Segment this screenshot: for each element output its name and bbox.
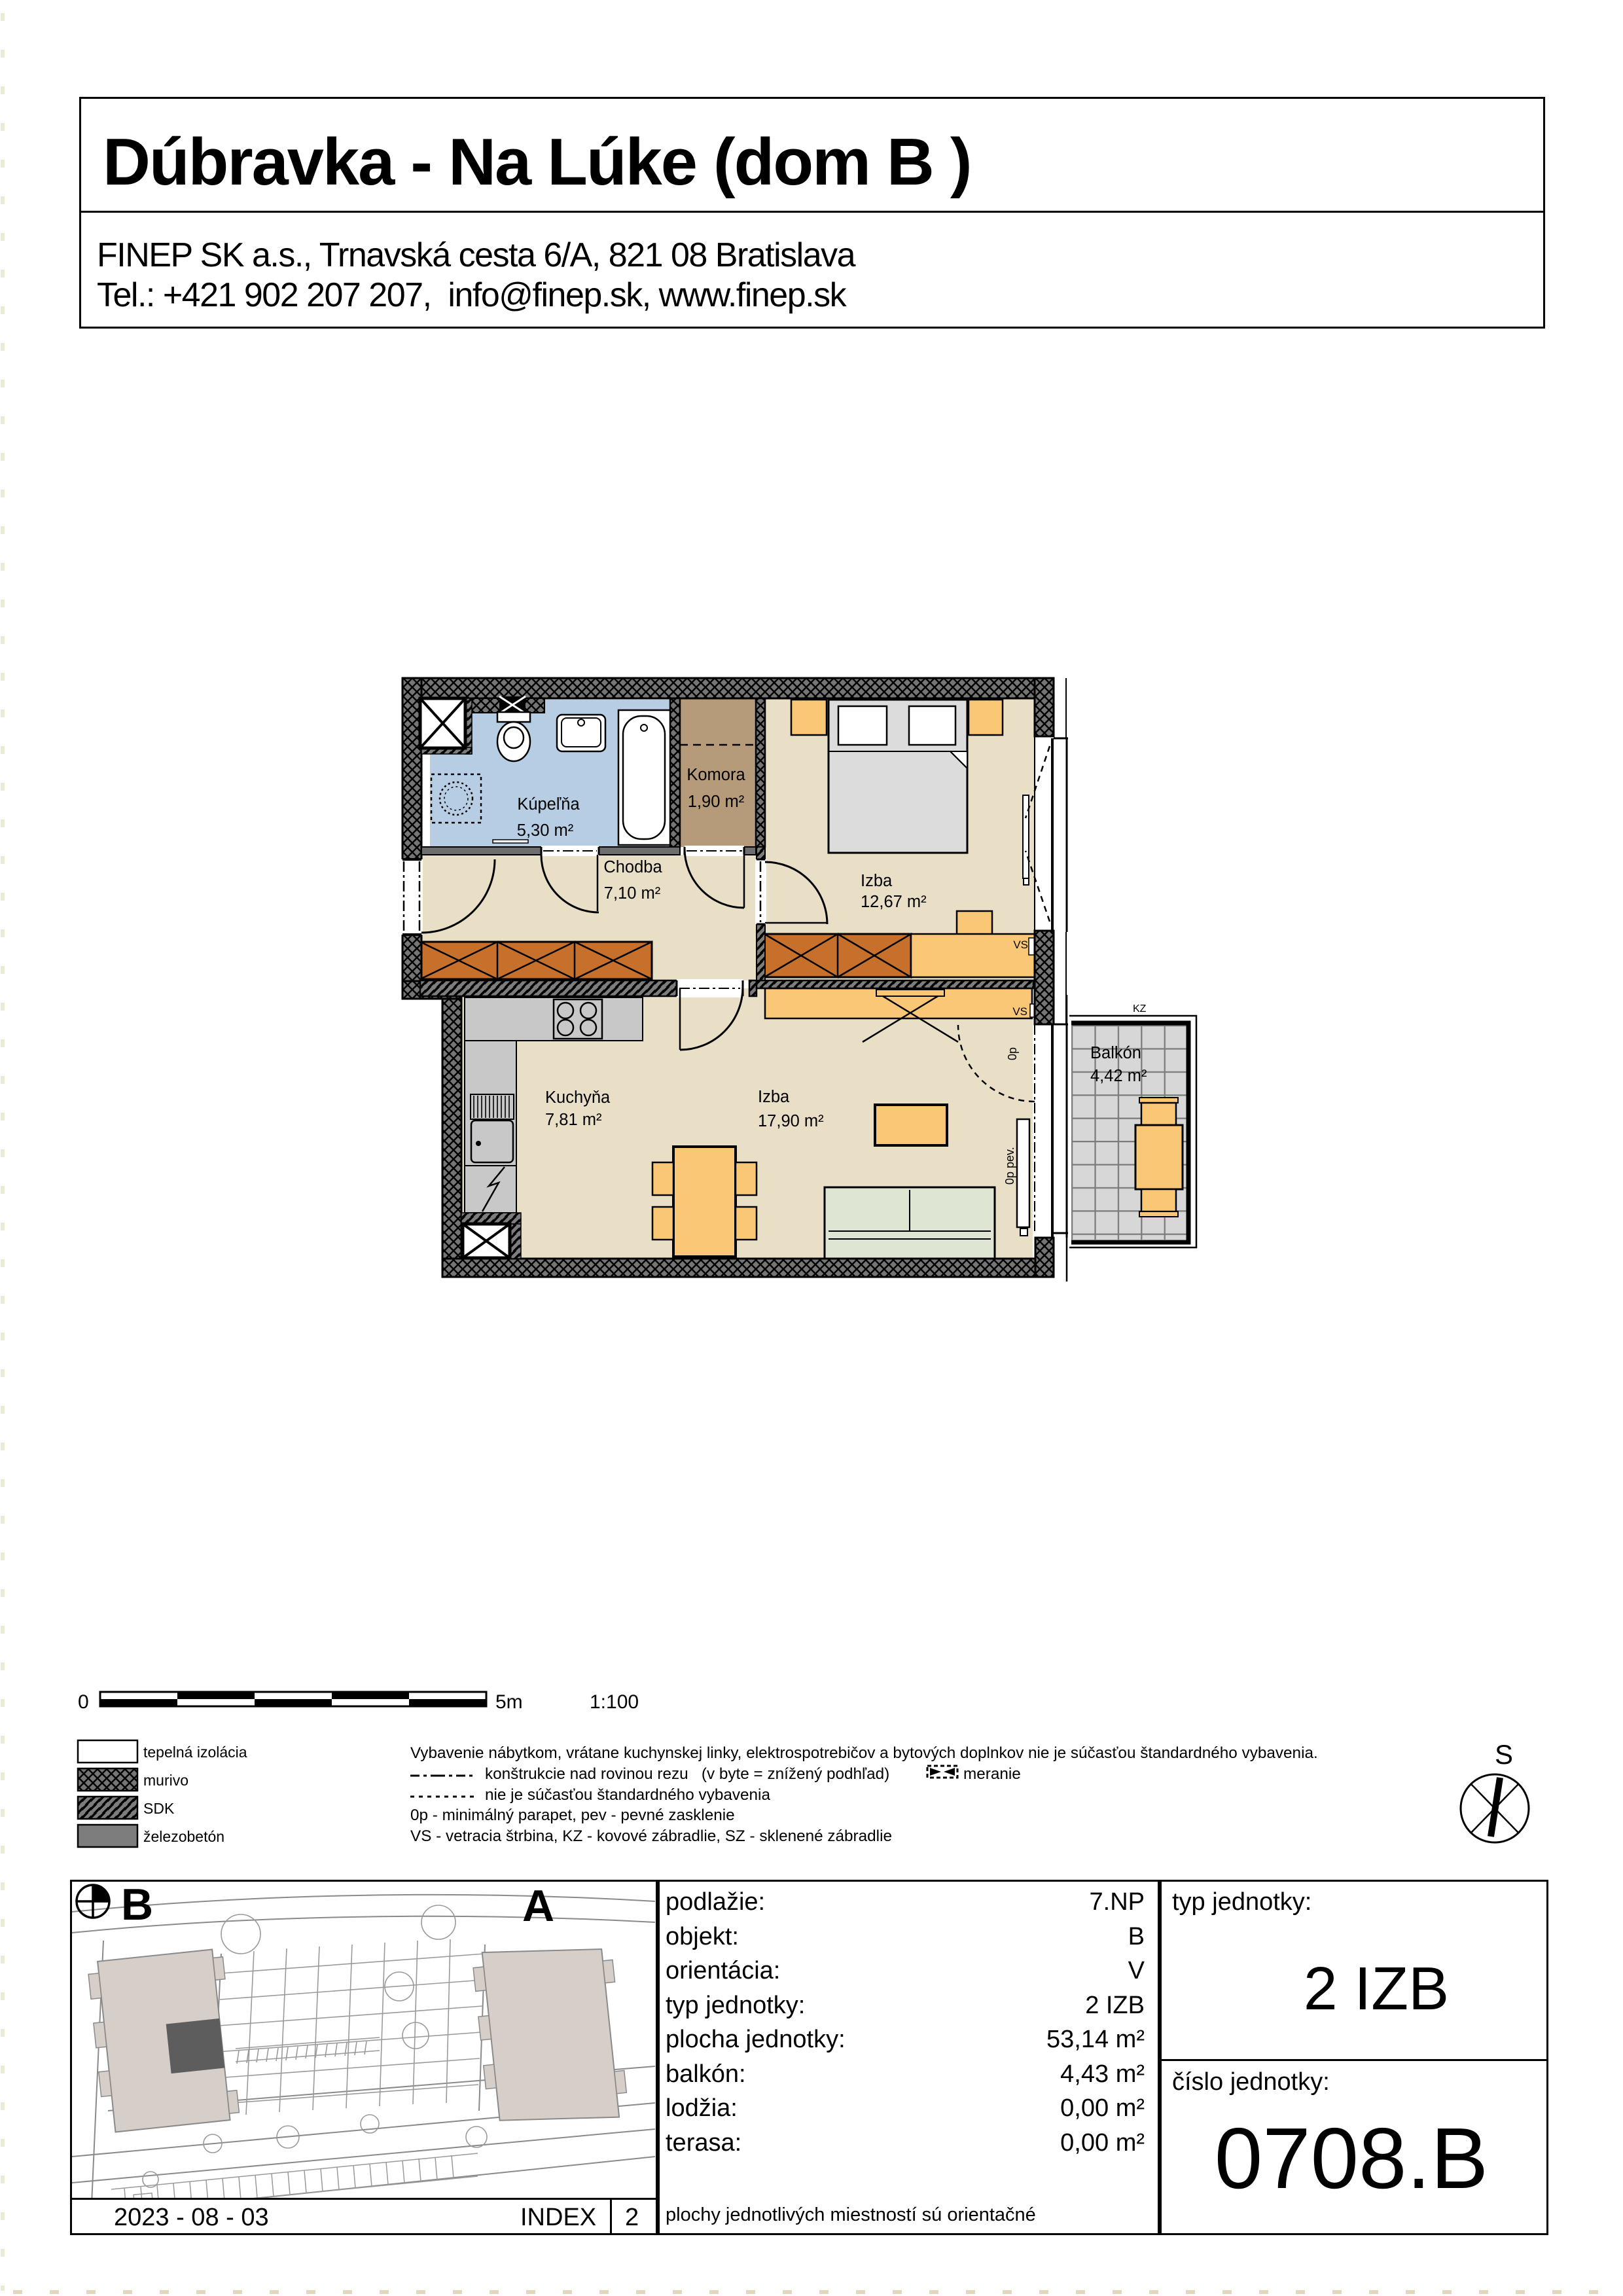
- svg-text:tepelná izolácia: tepelná izolácia: [143, 1744, 247, 1761]
- svg-text:4,42 m²: 4,42 m²: [1090, 1067, 1147, 1085]
- svg-text:Komora: Komora: [687, 766, 745, 784]
- svg-text:KZ: KZ: [1133, 1003, 1147, 1014]
- svg-text:0p: 0p: [1006, 1047, 1019, 1060]
- svg-text:Izba: Izba: [758, 1088, 790, 1106]
- svg-text:Kuchyňa: Kuchyňa: [545, 1088, 611, 1107]
- svg-text:0p pev.: 0p pev.: [1003, 1147, 1016, 1185]
- svg-text:7,10 m²: 7,10 m²: [604, 884, 660, 903]
- svg-text:5m: 5m: [495, 1691, 523, 1713]
- svg-text:VS: VS: [1012, 1005, 1027, 1018]
- svg-text:1:100: 1:100: [590, 1691, 639, 1713]
- svg-text:B: B: [121, 1882, 153, 1929]
- svg-text:Izba: Izba: [861, 872, 893, 890]
- svg-text:Chodba: Chodba: [603, 858, 662, 876]
- svg-text:1,90 m²: 1,90 m²: [688, 793, 744, 811]
- svg-text:5,30 m²: 5,30 m²: [517, 821, 573, 840]
- svg-text:0: 0: [78, 1691, 89, 1713]
- svg-text:murivo: murivo: [143, 1772, 188, 1789]
- svg-text:železobetón: železobetón: [143, 1828, 224, 1845]
- svg-text:12,67 m²: 12,67 m²: [861, 893, 927, 911]
- svg-text:SDK: SDK: [143, 1800, 175, 1817]
- svg-text:7,81 m²: 7,81 m²: [545, 1111, 601, 1129]
- svg-text:Kúpeľňa: Kúpeľňa: [517, 795, 580, 814]
- svg-text:VS: VS: [1013, 939, 1028, 951]
- svg-text:17,90 m²: 17,90 m²: [758, 1112, 824, 1130]
- svg-text:Balkón: Balkón: [1090, 1044, 1141, 1062]
- svg-text:S: S: [1495, 1739, 1513, 1770]
- svg-text:A: A: [522, 1882, 554, 1931]
